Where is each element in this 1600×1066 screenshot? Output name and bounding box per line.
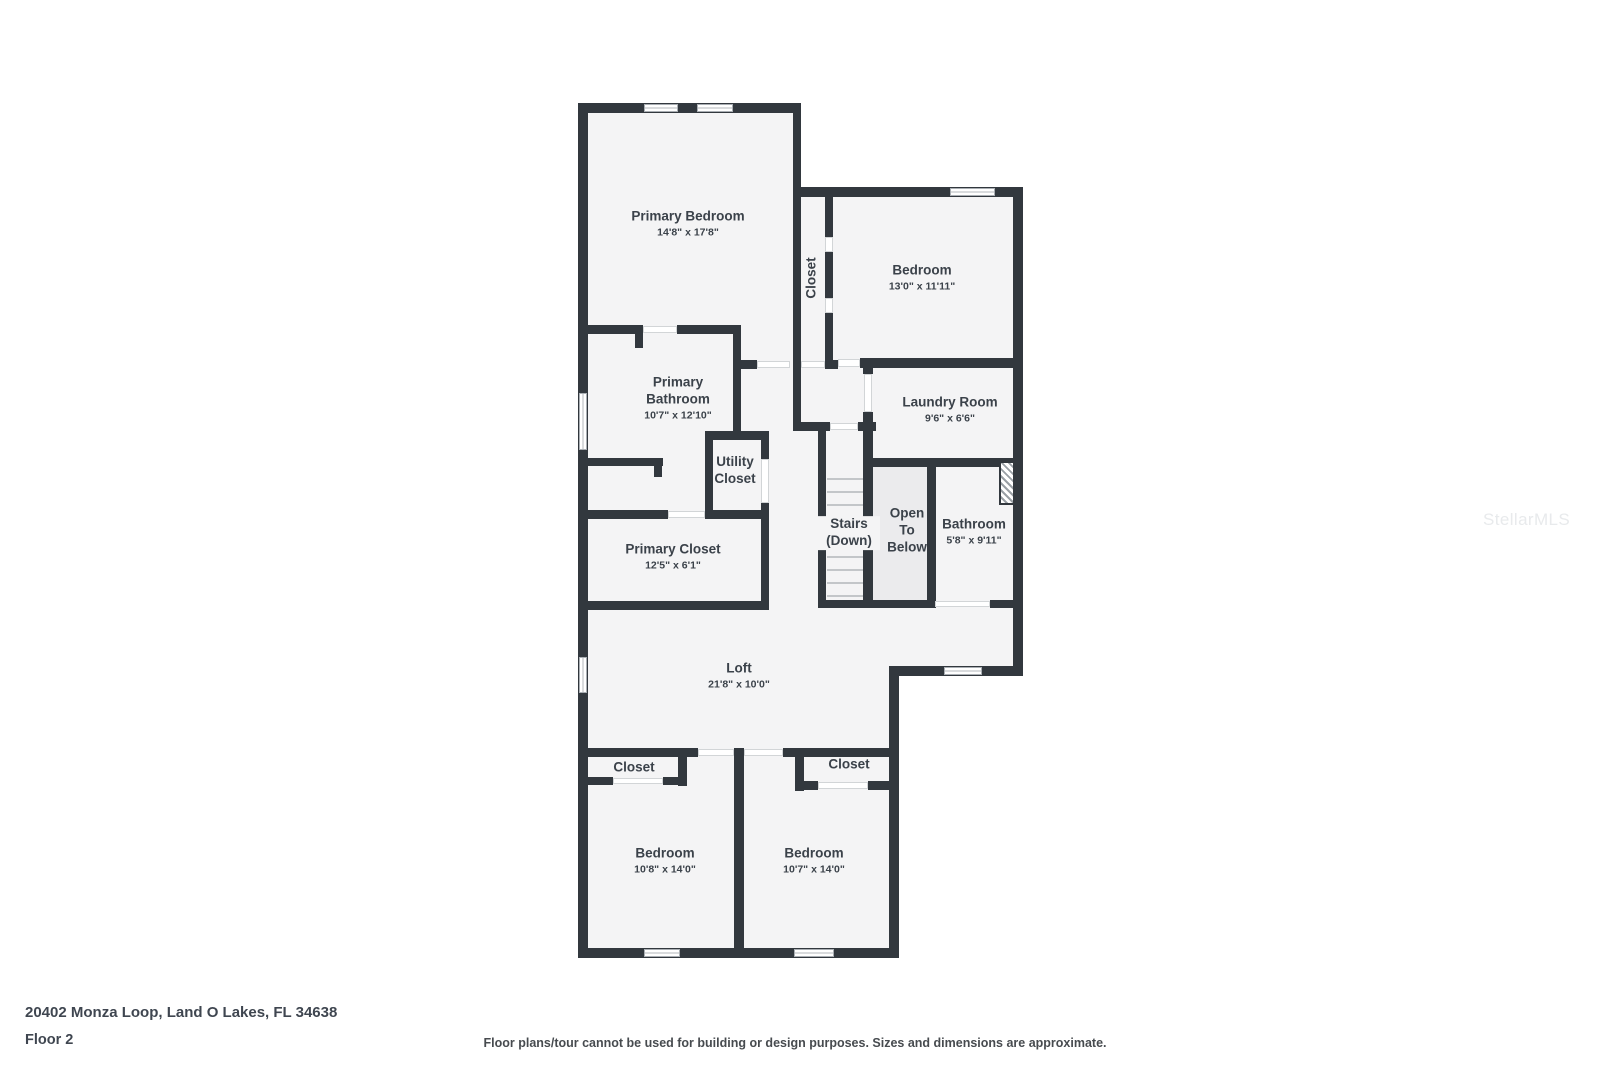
room-label-primary-bathroom: Primary Bathroom 10'7" x 12'10" <box>638 374 718 424</box>
room-name: Closet <box>804 257 821 298</box>
wall <box>825 252 833 298</box>
wall <box>705 431 769 440</box>
wall <box>578 103 801 113</box>
room-name: Bedroom <box>889 263 955 280</box>
door-opening <box>757 361 790 368</box>
window <box>644 949 680 957</box>
wall <box>635 325 643 348</box>
wall <box>578 325 635 334</box>
wall <box>860 358 1023 368</box>
room-label-bathroom: Bathroom 5'8" x 9'11" <box>942 517 1006 550</box>
floor-fill-right-lower <box>797 600 894 953</box>
room-name: Primary Bedroom <box>631 209 744 226</box>
wall <box>578 777 613 785</box>
door-opening <box>761 459 769 503</box>
disclaimer-text: Floor plans/tour cannot be used for buil… <box>483 1036 1106 1050</box>
window <box>579 393 587 450</box>
wall <box>793 422 830 431</box>
room-name: Primary Closet <box>625 542 720 559</box>
property-address: 20402 Monza Loop, Land O Lakes, FL 34638 <box>25 1004 337 1021</box>
room-name: Bedroom <box>634 846 696 863</box>
room-dims: 5'8" x 9'11" <box>942 534 1006 550</box>
wall <box>858 422 876 431</box>
wall <box>818 422 826 608</box>
wall <box>990 600 1023 608</box>
room-name: Closet <box>828 757 869 774</box>
wall <box>663 777 687 785</box>
door-opening <box>838 359 860 367</box>
room-name: Bathroom <box>942 517 1006 534</box>
wall <box>578 748 698 757</box>
room-label-utility-closet: Utility Closet <box>708 454 762 488</box>
window <box>644 104 678 112</box>
window <box>697 104 733 112</box>
wall <box>740 360 757 369</box>
room-label-bedroom-top: Bedroom 13'0" x 11'11" <box>889 263 955 296</box>
wall <box>795 781 818 790</box>
wall <box>818 600 935 608</box>
room-dims: 9'6" x 6'6" <box>902 412 997 428</box>
stairs-opening <box>830 423 858 430</box>
room-dims: 10'7" x 12'10" <box>638 408 718 424</box>
window <box>579 657 587 693</box>
room-label-loft: Loft 21'8" x 10'0" <box>708 661 770 694</box>
room-name: Laundry Room <box>902 395 997 412</box>
door-opening <box>935 601 990 607</box>
room-label-open-to-below: Open To Below <box>883 506 931 557</box>
shower-hatch <box>999 461 1015 505</box>
wall <box>734 748 744 958</box>
window <box>944 667 982 675</box>
door-opening <box>698 749 734 756</box>
door-opening <box>668 511 705 518</box>
wall <box>705 510 769 519</box>
wall <box>868 781 890 790</box>
wall <box>578 458 663 466</box>
wall <box>578 103 588 958</box>
wall <box>578 601 769 610</box>
room-name: Bedroom <box>783 846 845 863</box>
wall <box>578 510 668 519</box>
room-label-bedroom-bottom-left: Bedroom 10'8" x 14'0" <box>634 846 696 879</box>
room-label-closet-hall: Closet <box>804 257 821 298</box>
room-dims: 10'8" x 14'0" <box>634 863 696 879</box>
door-opening <box>864 374 872 412</box>
room-label-closet-left: Closet <box>613 760 654 777</box>
room-label-bedroom-bottom-right: Bedroom 10'7" x 14'0" <box>783 846 845 879</box>
stellar-mls-watermark: StellarMLS <box>1483 510 1570 530</box>
room-dims: 13'0" x 11'11" <box>889 280 955 296</box>
door-opening <box>613 778 663 784</box>
room-dims: 12'5" x 6'1" <box>625 559 720 575</box>
room-label-primary-bedroom: Primary Bedroom 14'8" x 17'8" <box>631 209 744 242</box>
room-name: Open To Below <box>883 506 931 557</box>
room-dims: 21'8" x 10'0" <box>708 678 770 694</box>
window <box>794 949 834 957</box>
wall <box>825 191 833 237</box>
room-name: Primary Bathroom <box>638 374 718 408</box>
door-opening <box>801 361 825 368</box>
wall <box>889 666 899 958</box>
door-opening <box>818 782 868 789</box>
room-label-stairs: Stairs (Down) <box>818 516 880 550</box>
room-name: Loft <box>708 661 770 678</box>
room-name: Stairs (Down) <box>818 516 880 550</box>
room-dims: 14'8" x 17'8" <box>631 226 744 242</box>
wall <box>733 325 741 440</box>
wall <box>793 103 801 431</box>
room-label-primary-closet: Primary Closet 12'5" x 6'1" <box>625 542 720 575</box>
room-label-closet-right: Closet <box>828 757 869 774</box>
floor-plan: Primary Bedroom 14'8" x 17'8" Closet Bed… <box>0 0 1600 1066</box>
door-opening <box>643 326 677 333</box>
door-opening <box>825 237 833 252</box>
door-opening <box>825 298 833 313</box>
wall <box>863 412 873 608</box>
room-name: Utility Closet <box>708 454 762 488</box>
room-name: Closet <box>613 760 654 777</box>
wall <box>761 503 769 610</box>
window <box>950 188 995 196</box>
door-opening <box>744 749 783 756</box>
wall <box>677 325 740 334</box>
room-label-laundry: Laundry Room 9'6" x 6'6" <box>902 395 997 428</box>
room-dims: 10'7" x 14'0" <box>783 863 845 879</box>
floor-label: Floor 2 <box>25 1032 73 1048</box>
wall <box>825 360 838 369</box>
